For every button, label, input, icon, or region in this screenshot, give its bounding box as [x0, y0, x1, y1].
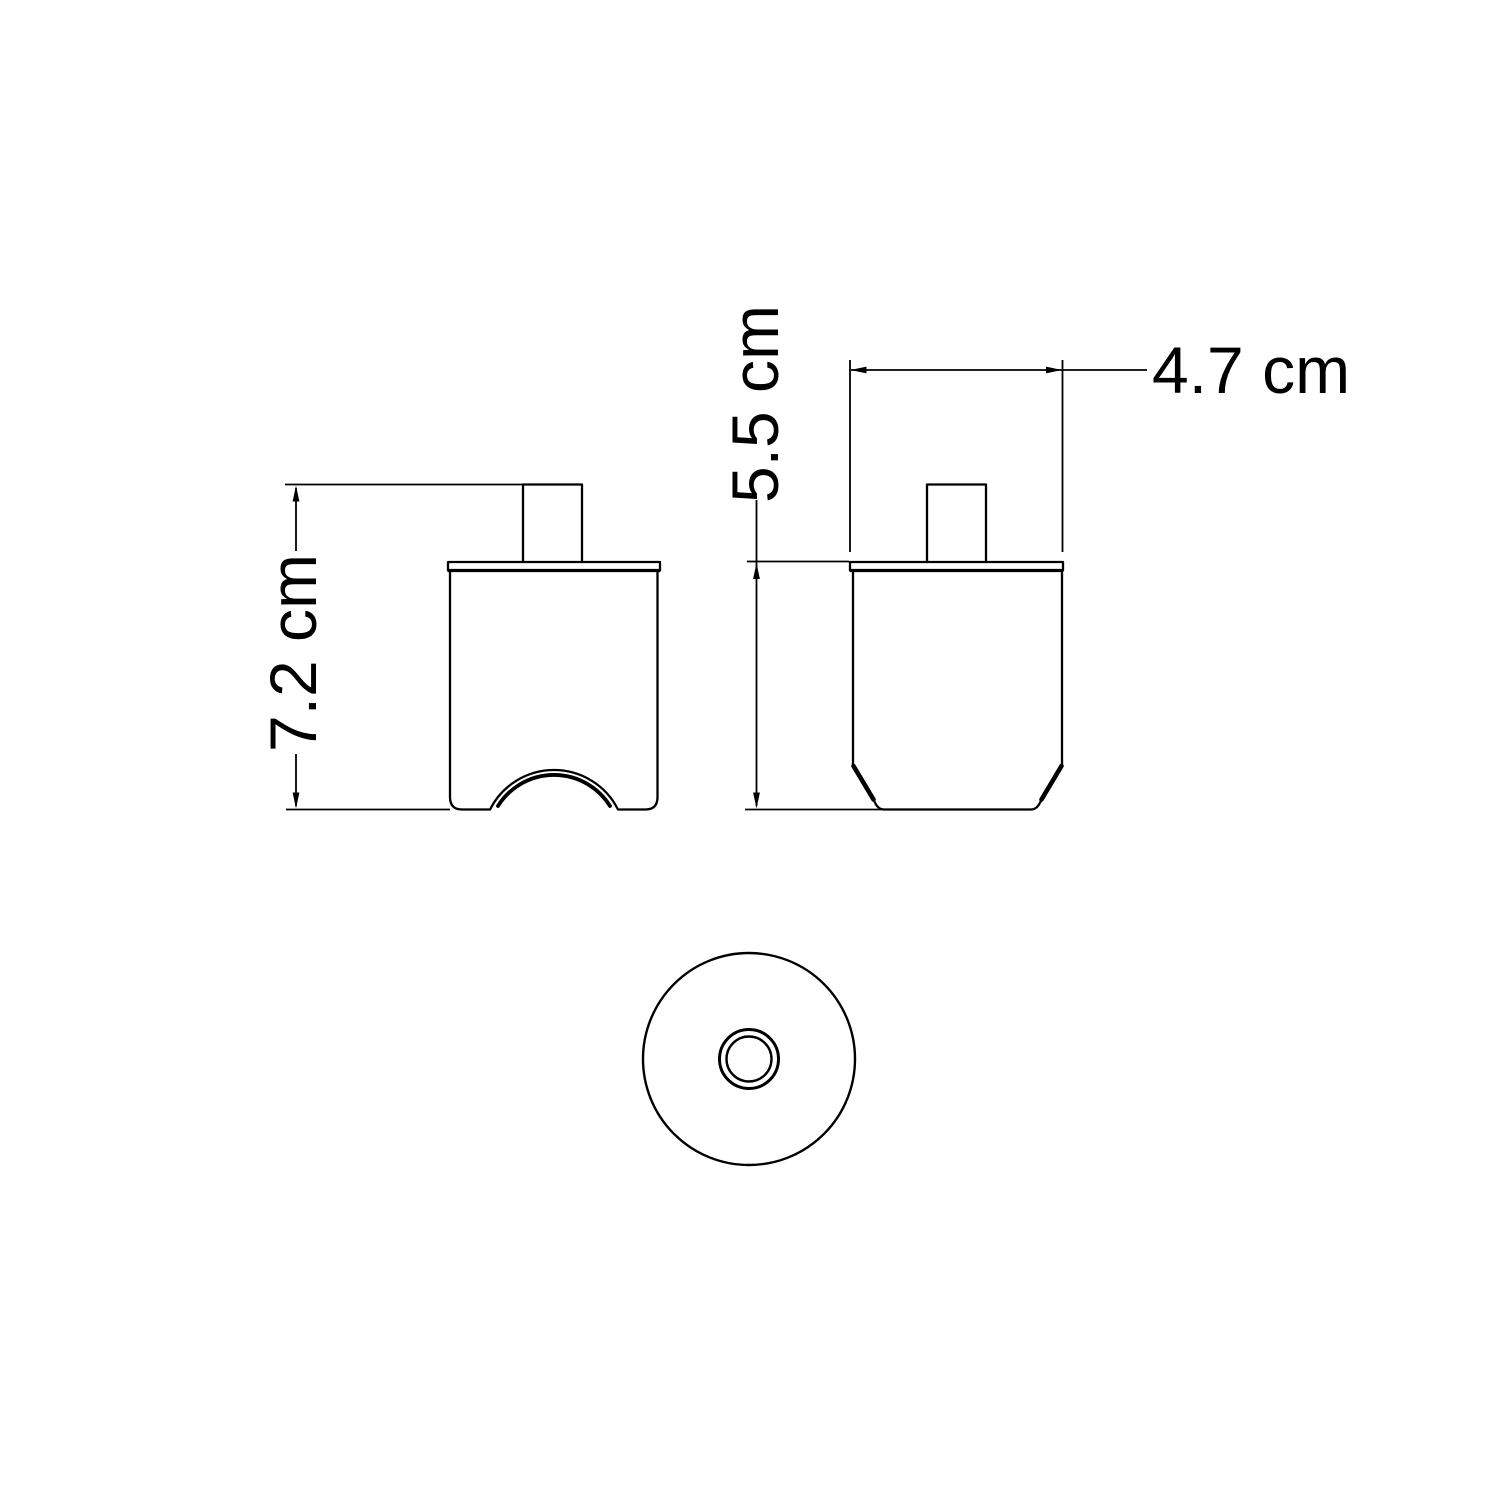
front-arch-inner-arc [498, 775, 610, 806]
arrow-down-icon [753, 793, 760, 809]
side-height-dimension: 5.5 cm [718, 305, 881, 810]
arrow-up-icon [753, 563, 760, 579]
cable-hole-outer-circle [720, 1030, 779, 1089]
bottom-outline-circle [643, 953, 855, 1165]
side-height-label: 5.5 cm [718, 305, 792, 503]
front-view [448, 485, 660, 810]
side-body-outline [853, 571, 1062, 810]
front-height-label: 7.2 cm [256, 554, 330, 752]
width-dimension: 4.7 cm [850, 333, 1350, 552]
side-left-chamfer [854, 766, 874, 800]
width-label: 4.7 cm [1152, 333, 1350, 407]
arrow-down-icon [293, 793, 300, 809]
bottom-view [643, 953, 855, 1165]
arrow-up-icon [293, 486, 300, 502]
arrow-right-icon [1046, 367, 1062, 374]
front-stem-outline [523, 485, 582, 563]
front-height-dimension: 7.2 cm [256, 485, 523, 810]
technical-drawing-page: 7.2 cm 5.5 cm [0, 0, 1500, 1500]
cable-hole-inner-circle [727, 1037, 772, 1082]
technical-drawing: 7.2 cm 5.5 cm [0, 0, 1500, 1500]
side-right-chamfer [1042, 766, 1062, 800]
side-view [850, 485, 1063, 810]
arrow-left-icon [851, 367, 867, 374]
side-stem-outline [927, 485, 986, 563]
